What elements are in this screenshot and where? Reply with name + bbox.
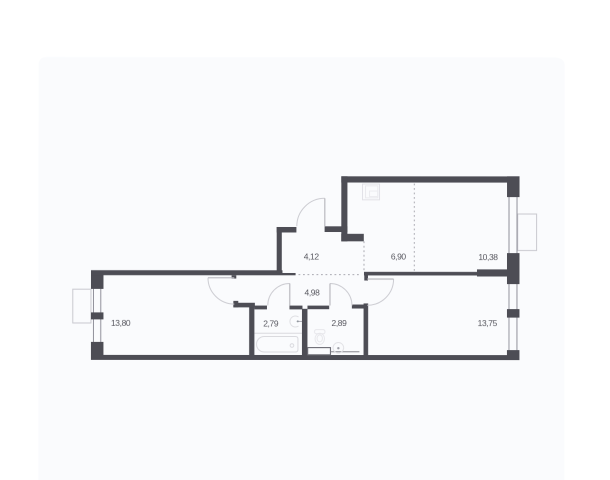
svg-text:4,98: 4,98: [304, 288, 320, 298]
svg-text:13,75: 13,75: [478, 318, 498, 328]
svg-text:6,90: 6,90: [391, 252, 407, 262]
svg-text:2,89: 2,89: [331, 318, 347, 328]
svg-text:10,38: 10,38: [478, 252, 498, 262]
svg-text:4,12: 4,12: [304, 252, 320, 262]
svg-text:13,80: 13,80: [111, 318, 131, 328]
svg-text:2,79: 2,79: [263, 318, 279, 328]
